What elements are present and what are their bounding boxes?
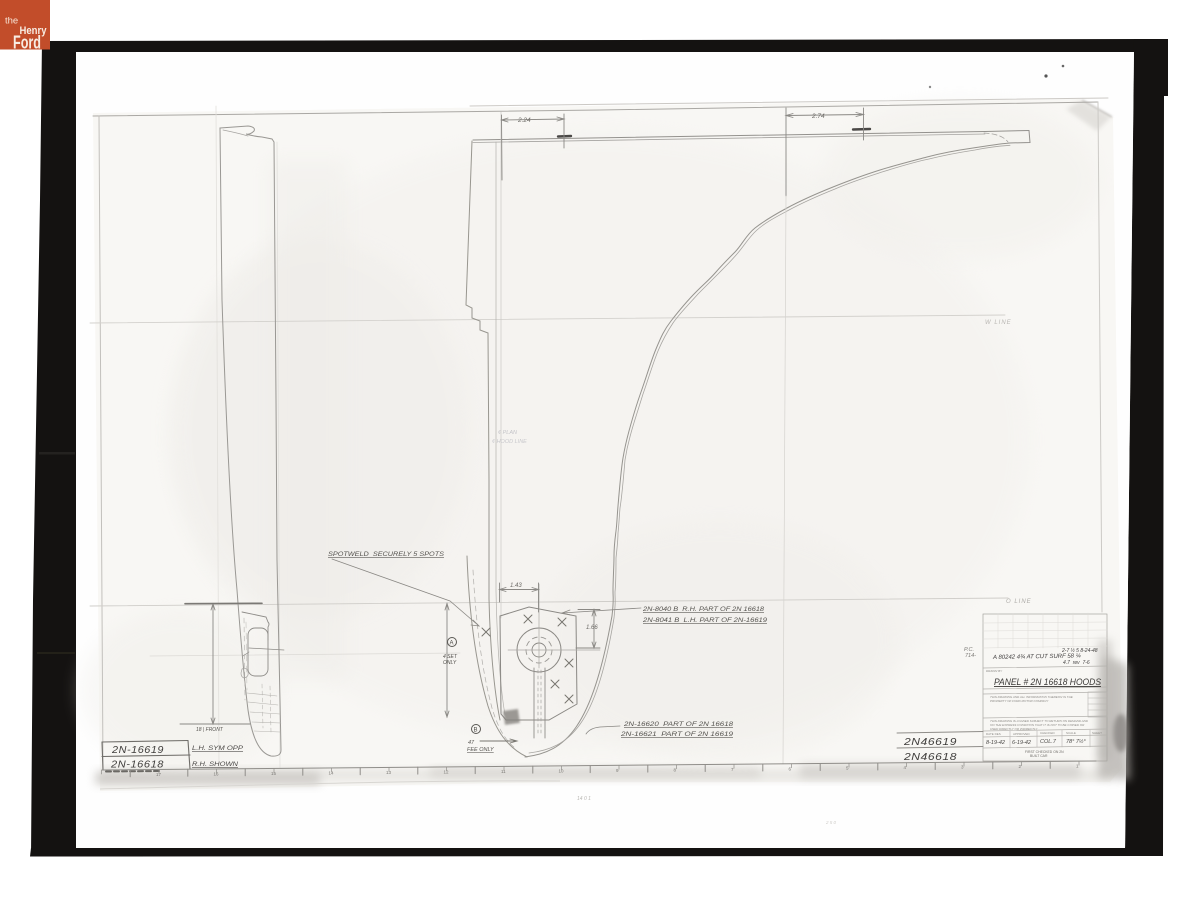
svg-text:4.7 rev 7-6: 4.7 rev 7-6 bbox=[1063, 660, 1090, 666]
svg-text:B: B bbox=[474, 728, 478, 734]
svg-text:2N-16621 PART OF 2N 16619: 2N-16621 PART OF 2N 16619 bbox=[620, 732, 734, 738]
svg-text:1.43: 1.43 bbox=[510, 583, 522, 589]
svg-text:O LINE: O LINE bbox=[1006, 599, 1032, 605]
svg-text:SPOTWELD SECURELY 5 SPOTS: SPOTWELD SECURELY 5 SPOTS bbox=[328, 552, 444, 558]
svg-text:2N46618: 2N46618 bbox=[903, 751, 957, 763]
svg-text:16: 16 bbox=[214, 772, 220, 777]
svg-text:2 5 0: 2 5 0 bbox=[825, 820, 837, 825]
svg-text:2N-16620 PART OF 2N 16618: 2N-16620 PART OF 2N 16618 bbox=[623, 722, 734, 728]
svg-text:DRAWN BY: DRAWN BY bbox=[986, 669, 1003, 673]
svg-text:APPROVED: APPROVED bbox=[1013, 732, 1031, 736]
svg-text:78° 7½°: 78° 7½° bbox=[1066, 738, 1086, 745]
svg-text:R.H. SHOWN: R.H. SHOWN bbox=[192, 762, 239, 768]
svg-text:14 0 1: 14 0 1 bbox=[577, 796, 591, 802]
svg-text:13: 13 bbox=[386, 770, 392, 775]
svg-text:COL.7: COL.7 bbox=[1040, 739, 1057, 745]
svg-text:18 | FRONT: 18 | FRONT bbox=[196, 727, 224, 733]
svg-text:2.24: 2.24 bbox=[517, 117, 531, 124]
svg-text:¢ HOOD LINE: ¢ HOOD LINE bbox=[492, 439, 527, 445]
svg-text:PROPERTY OF FORD MOTOR COMPANY: PROPERTY OF FORD MOTOR COMPANY bbox=[990, 699, 1049, 703]
svg-text:CHECKED: CHECKED bbox=[1040, 731, 1056, 735]
svg-text:11: 11 bbox=[501, 769, 506, 774]
svg-text:15: 15 bbox=[271, 771, 277, 776]
svg-text:L.H. SYM OPP: L.H. SYM OPP bbox=[192, 746, 243, 752]
svg-text:DATE DES: DATE DES bbox=[986, 732, 1001, 736]
svg-text:SHEET: SHEET bbox=[1092, 731, 1102, 735]
svg-text:W LINE: W LINE bbox=[985, 320, 1012, 326]
svg-text:47: 47 bbox=[468, 740, 475, 746]
svg-text:the: the bbox=[5, 16, 18, 27]
svg-text:6-19-42: 6-19-42 bbox=[1012, 740, 1031, 746]
svg-text:USED DIRECTLY OR INDIRECTLY: USED DIRECTLY OR INDIRECTLY bbox=[990, 727, 1038, 731]
svg-text:2-7 ½ 5 8-24-48: 2-7 ½ 5 8-24-48 bbox=[1061, 647, 1098, 654]
svg-text:1.66: 1.66 bbox=[586, 625, 598, 631]
svg-text:2N-16619: 2N-16619 bbox=[111, 745, 164, 756]
svg-text:10: 10 bbox=[559, 768, 565, 773]
svg-text:SCALE: SCALE bbox=[1066, 731, 1076, 735]
svg-text:FEE ONLY: FEE ONLY bbox=[467, 747, 494, 753]
svg-text:2N-16618: 2N-16618 bbox=[110, 760, 164, 771]
svg-text:¢ PLAN: ¢ PLAN bbox=[498, 430, 517, 436]
svg-text:P.C. 714-: P.C. 714- bbox=[964, 647, 976, 659]
svg-text:BUILT CAR: BUILT CAR bbox=[1030, 754, 1048, 758]
svg-text:PANEL # 2N 16618 HOODS: PANEL # 2N 16618 HOODS bbox=[994, 677, 1101, 687]
svg-text:A: A bbox=[450, 641, 454, 647]
svg-text:ONLY: ONLY bbox=[443, 660, 457, 666]
svg-text:8-19-42: 8-19-42 bbox=[986, 740, 1005, 746]
svg-text:2N-8041 B L.H. PART OF 2N-166: 2N-8041 B L.H. PART OF 2N-16619 bbox=[642, 618, 768, 624]
svg-text:12: 12 bbox=[444, 769, 450, 774]
svg-text:14: 14 bbox=[329, 770, 335, 775]
svg-text:17: 17 bbox=[156, 772, 162, 777]
svg-text:2N-8040 B R.H. PART OF 2N 166: 2N-8040 B R.H. PART OF 2N 16618 bbox=[642, 607, 765, 613]
svg-text:Ford: Ford bbox=[13, 33, 41, 53]
svg-text:2N46619: 2N46619 bbox=[903, 736, 957, 748]
svg-text:2.74: 2.74 bbox=[811, 113, 825, 120]
